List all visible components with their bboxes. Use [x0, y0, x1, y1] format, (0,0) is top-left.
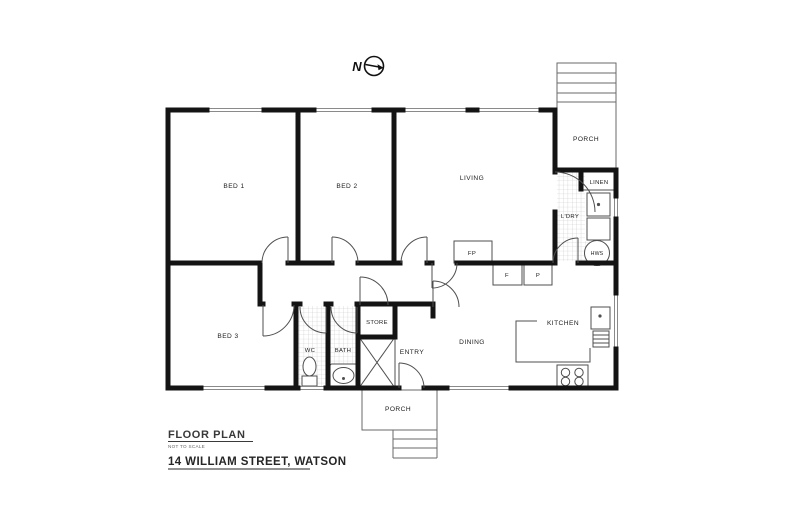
compass-needle: [366, 65, 380, 68]
fixture-label-fp: FP: [468, 251, 476, 257]
north-compass: N: [352, 57, 383, 76]
room-label-bed3: BED 3: [217, 333, 238, 340]
room-label-bed1: BED 1: [223, 183, 244, 190]
kitchen-bench: [516, 321, 590, 362]
walls-layer: [168, 110, 616, 388]
toilet: [302, 357, 317, 386]
laundry-tub: [587, 193, 610, 216]
scale-note: NOT TO SCALE: [168, 444, 205, 449]
room-label-dining: DINING: [459, 339, 485, 346]
room-label-kitchen: KITCHEN: [547, 320, 579, 327]
room-label-porch-top: PORCH: [573, 136, 599, 143]
cooktop: [557, 365, 588, 388]
fixture-label-hws: HWS: [591, 251, 604, 257]
room-label-wc: WC: [305, 348, 316, 354]
address-text: 14 WILLIAM STREET, WATSON: [168, 456, 346, 468]
room-label-bed2: BED 2: [336, 183, 357, 190]
room-label-porch-bottom: PORCH: [385, 406, 411, 413]
room-label-entry: ENTRY: [400, 349, 425, 356]
plan-title: FLOOR PLAN: [168, 429, 246, 441]
room-label-store: STORE: [366, 320, 388, 326]
room-label-linen: LINEN: [590, 180, 609, 186]
porch-top-outline: [557, 63, 616, 171]
porch-bottom-outline: [362, 390, 437, 458]
floor-plan-page: BED 1 BED 2 LIVING PORCH LINEN L'DRY HWS…: [0, 0, 790, 527]
room-label-bath: BATH: [335, 348, 351, 354]
title-block: FLOOR PLAN NOT TO SCALE 14 WILLIAM STREE…: [168, 429, 346, 469]
washer-space: [587, 218, 610, 240]
fixture-label-pantry: P: [536, 273, 540, 279]
fixture-label-fridge: F: [505, 273, 509, 279]
kitchen-sink: [591, 307, 610, 347]
floor-plan-drawing: BED 1 BED 2 LIVING PORCH LINEN L'DRY HWS…: [0, 0, 790, 527]
store-cupboard-x: [359, 337, 395, 388]
bathtub: [330, 364, 357, 387]
room-label-laundry: L'DRY: [561, 214, 579, 220]
room-label-living: LIVING: [460, 175, 484, 182]
north-label: N: [352, 59, 362, 74]
